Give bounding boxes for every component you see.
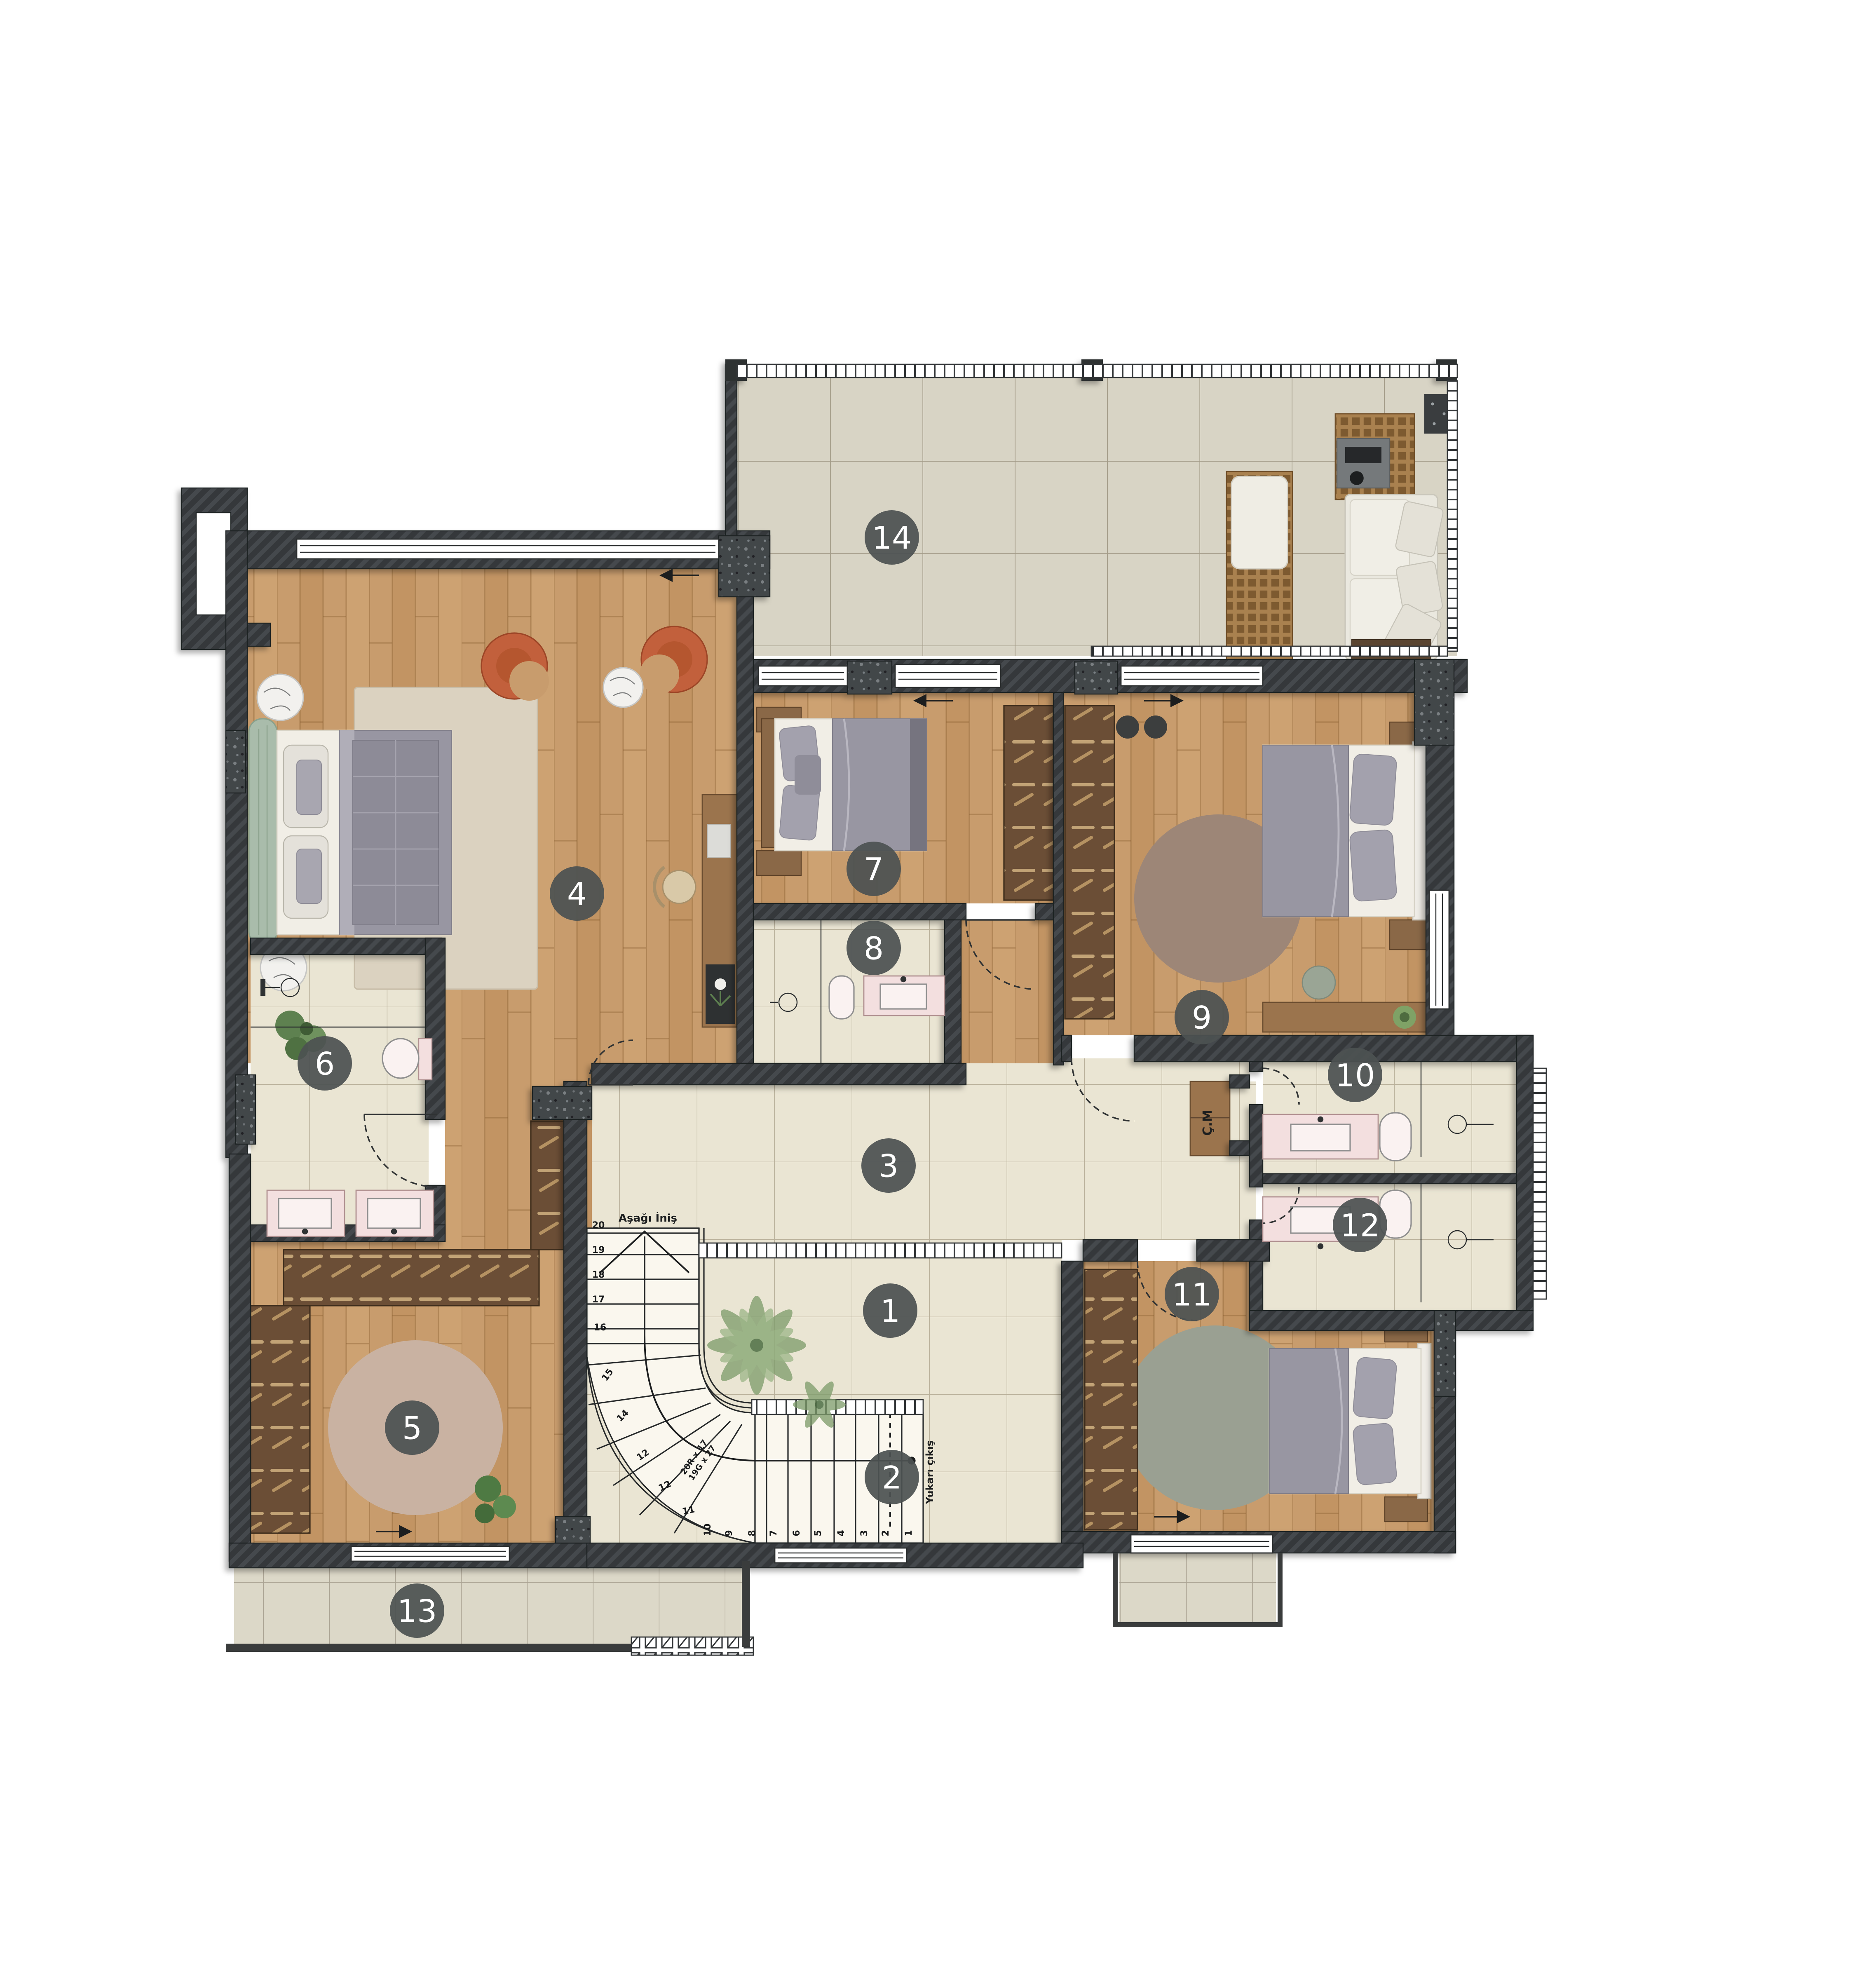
void-guardrail — [699, 1243, 1062, 1258]
terrace-sofa — [1345, 495, 1444, 664]
laundry-closet-label: Ç.M — [1201, 1109, 1215, 1135]
balcony11-floor — [1119, 1553, 1276, 1622]
floor-plan-page: Aşağı İniş Yukarı çıkış 20R x 17 19G x 2… — [0, 0, 1876, 1975]
bedroom9-bed — [1263, 722, 1429, 950]
room-label-12: 12 — [1333, 1198, 1387, 1252]
door-lobby-floor — [961, 920, 1053, 1063]
concrete-column — [532, 1086, 592, 1119]
bedroom9-wardrobe — [1065, 706, 1114, 1019]
wall — [229, 1154, 251, 1561]
svg-text:10: 10 — [1335, 1057, 1375, 1093]
step-number: 7 — [769, 1530, 779, 1536]
room-label-11: 11 — [1165, 1267, 1219, 1321]
stool — [1144, 715, 1167, 739]
step-number: 10 — [703, 1524, 713, 1536]
bedroom11-wardrobe — [1085, 1269, 1137, 1530]
svg-text:4: 4 — [567, 875, 587, 912]
concrete-column — [719, 536, 770, 597]
desk-laptop — [707, 824, 730, 857]
slider-bedroom7 — [895, 664, 1001, 687]
balcony11-rail — [1113, 1553, 1118, 1626]
dressing-wardrobe-left — [251, 1306, 310, 1533]
balcony13-floor — [234, 1561, 742, 1644]
hall-opening-floor — [966, 1063, 1065, 1085]
stair-up-label: Yukarı çıkış — [924, 1440, 936, 1504]
terrace-railing-right — [1447, 381, 1457, 651]
dressing-wardrobe-top — [284, 1250, 539, 1306]
step-number: 1 — [904, 1530, 914, 1536]
concrete-column — [226, 730, 246, 793]
room-label-13: 13 — [390, 1583, 444, 1638]
room-label-8: 8 — [847, 921, 901, 975]
step-number: 5 — [813, 1530, 823, 1536]
concrete-column — [236, 1075, 256, 1144]
toilet-tank-bath6 — [419, 1039, 432, 1080]
room-label-4: 4 — [550, 866, 604, 921]
window-stair — [775, 1548, 907, 1563]
step-number: 6 — [792, 1530, 802, 1536]
balcony13-rail-right — [742, 1561, 750, 1647]
room-label-14: 14 — [865, 510, 919, 565]
step-number: 17 — [592, 1295, 605, 1305]
room-label-10: 10 — [1328, 1048, 1382, 1102]
svg-text:11: 11 — [1172, 1276, 1212, 1313]
svg-text:5: 5 — [402, 1410, 422, 1446]
balcony11-rail — [1113, 1622, 1283, 1627]
desk-chair — [663, 870, 696, 903]
room-label-6: 6 — [298, 1036, 352, 1091]
room-label-7: 7 — [847, 842, 901, 896]
step-number: 3 — [859, 1530, 870, 1536]
toilet-bath10 — [1380, 1113, 1411, 1161]
bedroom7-wardrobe — [1004, 706, 1053, 900]
concrete-column — [556, 1517, 590, 1543]
svg-text:12: 12 — [1340, 1207, 1380, 1243]
concrete-column — [1434, 1311, 1456, 1396]
step-number: 8 — [747, 1530, 757, 1536]
hallway-floor — [592, 1081, 1256, 1240]
svg-text:1: 1 — [880, 1292, 900, 1329]
toilet-bath6 — [382, 1039, 419, 1078]
room-label-5: 5 — [385, 1400, 439, 1455]
svg-text:9: 9 — [1192, 999, 1212, 1036]
window-dressing — [351, 1546, 509, 1561]
step-number: 18 — [592, 1270, 605, 1280]
room-label-9: 9 — [1175, 990, 1229, 1044]
master-bed — [249, 719, 452, 945]
armchair-orange-right — [640, 626, 707, 694]
step-number: 4 — [836, 1530, 847, 1536]
terrace-chaise — [1226, 471, 1292, 663]
step-number: 20 — [592, 1220, 605, 1231]
concrete-column — [847, 661, 892, 694]
bedroom7-bed — [757, 707, 926, 875]
svg-text:2: 2 — [882, 1459, 902, 1496]
window-bedroom9-side — [1429, 890, 1449, 1009]
svg-text:7: 7 — [864, 851, 884, 887]
stool — [1116, 715, 1139, 739]
window-bedroom9 — [1121, 666, 1263, 686]
terrace-grill-table — [1335, 414, 1414, 500]
stair-down-label: Aşağı İniş — [619, 1211, 677, 1224]
room-label-2: 2 — [865, 1450, 919, 1504]
svg-text:3: 3 — [879, 1147, 898, 1184]
svg-text:8: 8 — [864, 930, 884, 966]
room-label-3: 3 — [861, 1138, 916, 1193]
step-number: 19 — [592, 1245, 605, 1255]
svg-text:13: 13 — [397, 1593, 437, 1629]
svg-text:14: 14 — [872, 519, 912, 556]
svg-text:6: 6 — [315, 1045, 335, 1082]
window-bedroom7 — [758, 666, 847, 686]
exterior-ledge — [1533, 1068, 1546, 1299]
floor-plan-canvas: Aşağı İniş Yukarı çıkış 20R x 17 19G x 2… — [0, 0, 1876, 1975]
concrete-column — [1414, 659, 1454, 745]
step-number: 2 — [881, 1530, 891, 1536]
concrete-column — [1075, 661, 1118, 694]
balcony-door-bedroom11 — [1131, 1535, 1273, 1553]
room-label-1: 1 — [863, 1283, 917, 1338]
marble-side-table — [257, 674, 303, 720]
terrace-railing-top — [737, 364, 1457, 378]
toilet-bath8 — [829, 976, 854, 1019]
pouf — [1302, 966, 1335, 999]
armchair-orange-left — [481, 633, 549, 701]
marble-coffee-table — [603, 668, 643, 707]
step-number: 16 — [594, 1323, 607, 1333]
wall — [226, 531, 247, 1157]
balcony11-rail — [1278, 1553, 1283, 1626]
balcony13-grate — [631, 1637, 753, 1655]
terrace-railing-bottom — [1091, 646, 1447, 656]
window-master — [297, 539, 719, 559]
step-number: 9 — [724, 1530, 734, 1536]
